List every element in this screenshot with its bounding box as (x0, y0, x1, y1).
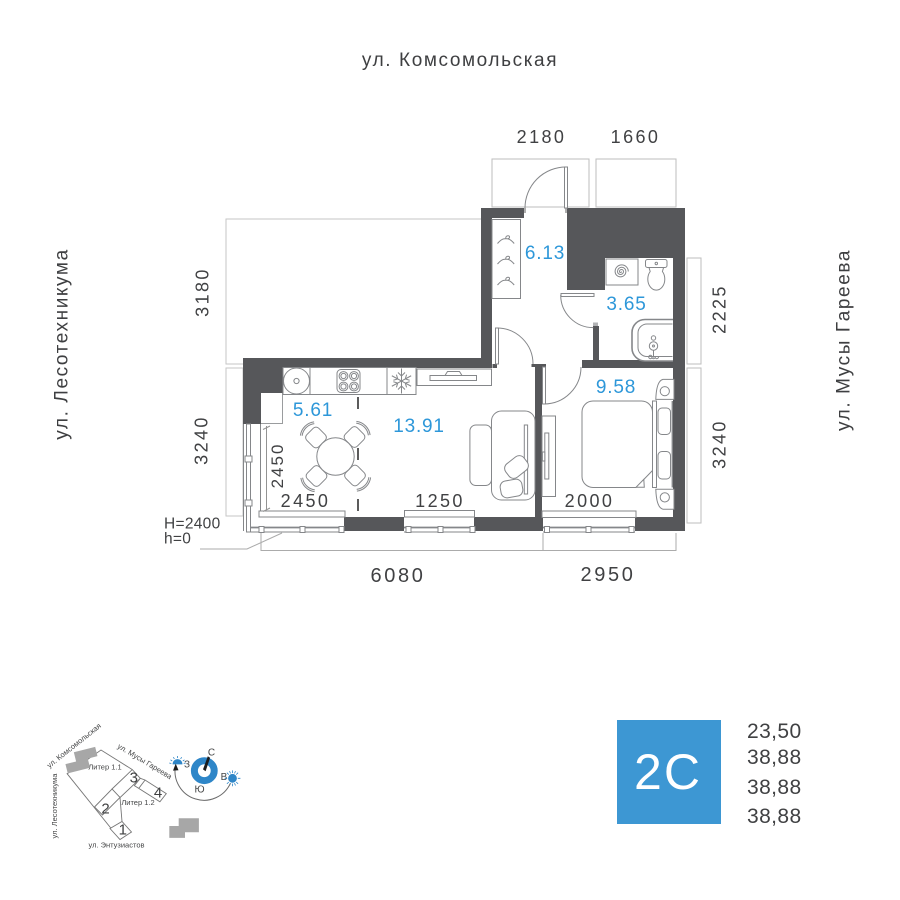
svg-text:ул. Лесотехникума: ул. Лесотехникума (50, 773, 59, 839)
svg-text:1660: 1660 (611, 127, 661, 147)
svg-text:38,88: 38,88 (747, 746, 802, 769)
svg-text:2C: 2C (634, 744, 702, 800)
svg-text:3: 3 (130, 770, 138, 787)
svg-text:23,50: 23,50 (747, 720, 802, 743)
svg-text:2225: 2225 (710, 284, 730, 334)
svg-text:ул. Комсомольская: ул. Комсомольская (362, 50, 558, 71)
svg-text:13.91: 13.91 (393, 416, 445, 437)
svg-text:ул. Энтузиастов: ул. Энтузиастов (89, 841, 145, 850)
svg-text:38,88: 38,88 (747, 805, 802, 828)
svg-text:Литер 1.1: Литер 1.1 (88, 763, 121, 772)
svg-text:2180: 2180 (517, 127, 567, 147)
svg-text:9.58: 9.58 (596, 377, 636, 398)
svg-text:Литер 1.2: Литер 1.2 (121, 798, 154, 807)
svg-text:4: 4 (154, 785, 162, 802)
svg-text:2000: 2000 (565, 491, 615, 511)
svg-text:38,88: 38,88 (747, 776, 802, 799)
svg-text:h=0: h=0 (164, 531, 191, 548)
svg-text:2950: 2950 (581, 564, 636, 586)
svg-text:3180: 3180 (193, 267, 213, 317)
svg-text:С: С (208, 748, 215, 759)
svg-text:5.61: 5.61 (293, 400, 333, 421)
svg-text:3240: 3240 (192, 415, 212, 465)
svg-text:2: 2 (101, 801, 109, 818)
svg-text:В: В (221, 772, 228, 783)
svg-text:6080: 6080 (371, 565, 426, 587)
svg-text:6.13: 6.13 (525, 243, 565, 264)
svg-text:2450: 2450 (281, 491, 331, 511)
svg-text:1: 1 (119, 822, 127, 839)
svg-text:ул. Мусы Гареева: ул. Мусы Гареева (834, 249, 855, 431)
svg-text:1250: 1250 (415, 491, 465, 511)
svg-text:ул. Лесотехникума: ул. Лесотехникума (52, 248, 73, 440)
svg-text:3240: 3240 (710, 419, 730, 469)
svg-text:3.65: 3.65 (606, 294, 646, 315)
svg-text:З: З (184, 760, 190, 771)
svg-text:2450: 2450 (268, 443, 287, 489)
svg-text:Ю: Ю (194, 785, 204, 796)
